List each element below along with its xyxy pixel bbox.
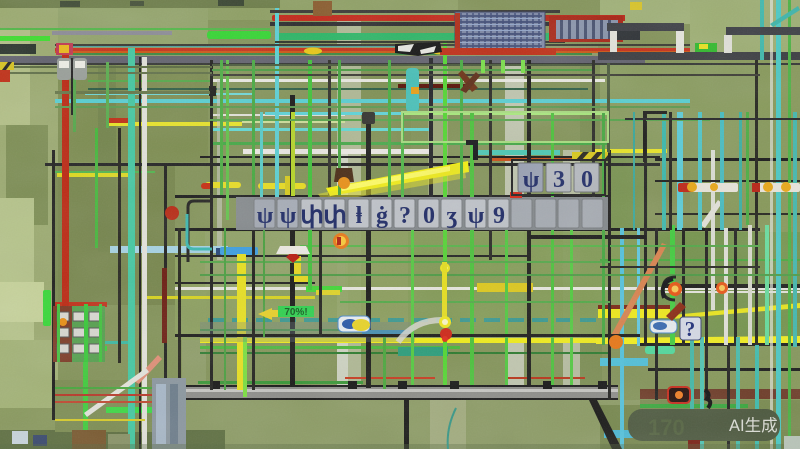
- svg-text:AI生成: AI生成: [729, 416, 778, 435]
